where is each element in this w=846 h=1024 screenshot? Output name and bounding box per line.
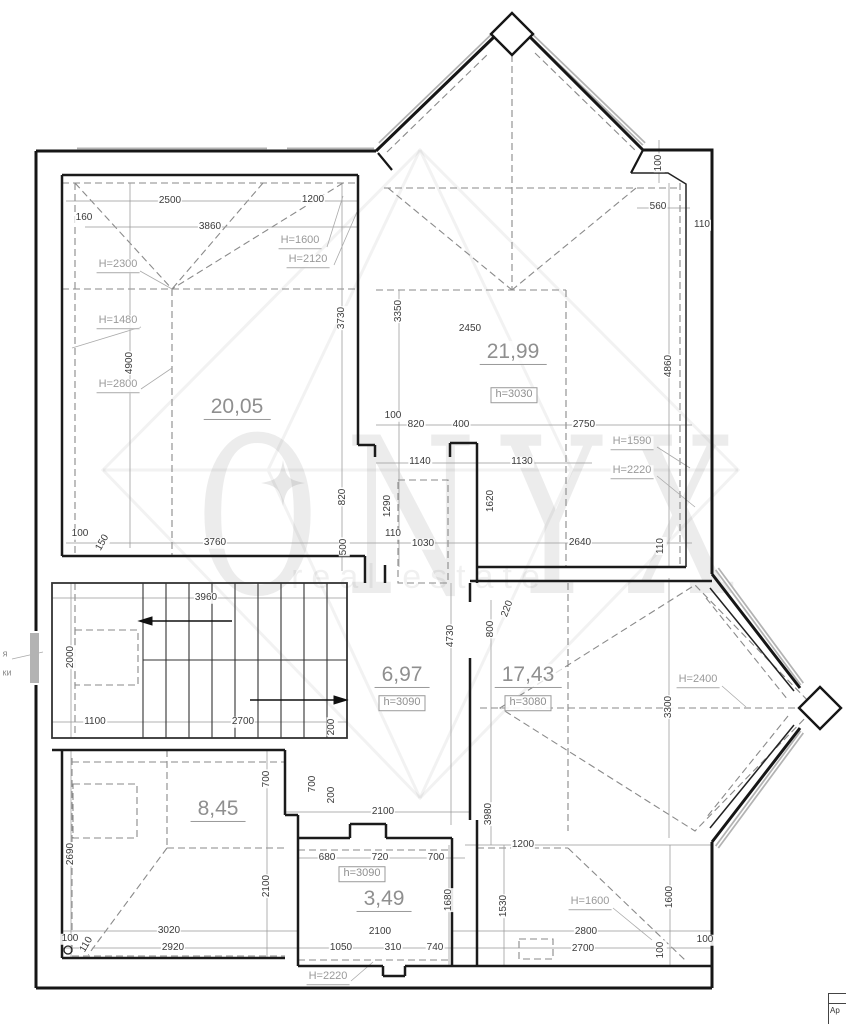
title-block-divider — [829, 1003, 846, 1004]
ceiling-height-label: H=2220 — [611, 465, 654, 479]
dimension-label: 1290 — [383, 494, 394, 518]
dimension-label: 4900 — [125, 351, 136, 375]
dimension-label: 100 — [656, 941, 667, 960]
dimension-label: 2690 — [66, 842, 77, 866]
dimension-label: 2000 — [66, 645, 77, 669]
ceiling-height-label: H=2800 — [97, 379, 140, 393]
dimension-label: 2500 — [158, 196, 182, 207]
dimension-label: 2700 — [571, 944, 595, 955]
dimension-label: 1680 — [444, 888, 455, 912]
ceiling-height-label: H=1600 — [569, 896, 612, 910]
ceiling-height-label: H=2300 — [97, 259, 140, 273]
dimension-label: 700 — [262, 770, 273, 789]
dimension-label: 2700 — [231, 717, 255, 728]
room-height-box: h=3080 — [504, 695, 551, 711]
dimension-label: 220 — [500, 598, 516, 619]
dimension-label: 1130 — [510, 457, 534, 468]
dimension-label: 2100 — [262, 874, 273, 898]
dimension-label: 700 — [427, 853, 446, 864]
title-block-text: Ap — [830, 1006, 840, 1015]
dimension-label: 2100 — [368, 927, 392, 938]
dimension-label: 3020 — [157, 926, 181, 937]
dimension-label: 100 — [71, 529, 90, 540]
dimension-label: 200 — [327, 718, 338, 737]
ceiling-height-label: H=2120 — [287, 254, 330, 268]
title-block: Ap — [828, 993, 846, 1024]
dimension-label: 2750 — [572, 420, 596, 431]
dimension-label: 1030 — [411, 539, 435, 550]
room-area-label: 8,45 — [191, 798, 246, 822]
dimension-label: 3960 — [194, 593, 218, 604]
dimension-label: 820 — [407, 420, 426, 431]
ceiling-height-label: H=2400 — [677, 674, 720, 688]
dimension-label: 500 — [339, 538, 350, 557]
dimension-label: 1100 — [83, 717, 107, 728]
dimension-label: 1530 — [499, 894, 510, 918]
dimension-label: 110 — [656, 537, 667, 555]
dimension-label: 1200 — [511, 840, 535, 851]
dimension-label: 3300 — [664, 695, 675, 719]
dimension-label: 680 — [318, 853, 337, 864]
dimension-label: 3350 — [394, 299, 405, 323]
dimension-label: 310 — [384, 943, 403, 954]
dimension-label: 2100 — [371, 807, 395, 818]
dimension-label: 1620 — [486, 489, 497, 513]
dimension-label: 3860 — [198, 222, 222, 233]
dimension-label: 1200 — [301, 195, 325, 206]
dimension-label: 720 — [371, 853, 390, 864]
dimension-label: 110 — [78, 935, 96, 956]
room-area-label: 3,49 — [357, 888, 412, 912]
dimension-label: 3980 — [484, 802, 495, 826]
margin-note: я — [3, 649, 8, 658]
dimension-label: 740 — [426, 943, 445, 954]
room-area-label: 6,97 — [375, 664, 430, 688]
dimension-label: 1050 — [329, 943, 353, 954]
floor-plan-page: ONYX real estate — [0, 0, 846, 1024]
room-area-label: 17,43 — [495, 664, 562, 688]
room-height-box: h=3030 — [490, 387, 537, 403]
margin-note: ки — [3, 668, 12, 677]
ceiling-height-label: H=1600 — [279, 235, 322, 249]
dimension-label: 100 — [384, 411, 403, 422]
dimension-label: 150 — [94, 532, 112, 553]
room-area-label: 21,99 — [480, 341, 547, 365]
dimension-label: 100 — [696, 935, 715, 946]
room-height-box: h=3090 — [378, 695, 425, 711]
dimension-label: 110 — [384, 529, 402, 540]
dimension-label: 1600 — [665, 885, 676, 909]
dimension-label: 4730 — [446, 624, 457, 648]
dimension-label: 3760 — [203, 538, 227, 549]
ceiling-height-label: H=2220 — [307, 971, 350, 985]
dimension-label: 700 — [308, 775, 319, 794]
dimension-label: 800 — [486, 620, 497, 639]
dimension-label: 560 — [649, 202, 668, 213]
dimension-label: 4860 — [664, 354, 675, 378]
dimension-label: 1140 — [408, 457, 432, 468]
dimension-label: 2450 — [458, 324, 482, 335]
plan-labels: 2500120016038602450560110100490037303350… — [0, 0, 846, 1024]
dimension-label: 200 — [327, 786, 338, 805]
room-area-label: 20,05 — [204, 396, 271, 420]
dimension-label: 2640 — [568, 538, 592, 549]
ceiling-height-label: H=1590 — [611, 436, 654, 450]
dimension-label: 2800 — [574, 927, 598, 938]
dimension-label: 100 — [654, 154, 665, 173]
ceiling-height-label: H=1480 — [97, 315, 140, 329]
dimension-label: 160 — [75, 213, 94, 224]
room-height-box: h=3090 — [338, 866, 385, 882]
dimension-label: 2920 — [161, 943, 185, 954]
dimension-label: 110 — [693, 220, 711, 231]
dimension-label: 400 — [452, 420, 471, 431]
dimension-label: 100 — [61, 934, 80, 945]
dimension-label: 820 — [338, 488, 349, 507]
dimension-label: 3730 — [337, 306, 348, 330]
